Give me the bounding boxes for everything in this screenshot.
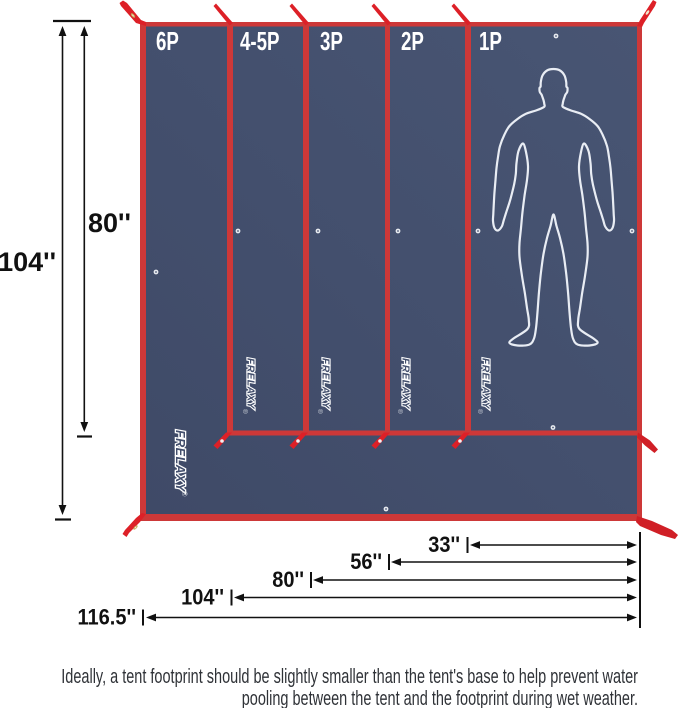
svg-text:104'': 104'' <box>0 247 56 277</box>
svg-text:2P: 2P <box>401 26 424 56</box>
svg-text:pooling between the tent and t: pooling between the tent and the footpri… <box>242 687 638 708</box>
svg-text:FRELAXY: FRELAXY <box>320 358 331 410</box>
svg-text:Ideally, a tent footprint shou: Ideally, a tent footprint should be slig… <box>61 665 638 688</box>
svg-text:104'': 104'' <box>181 586 224 610</box>
svg-text:4-5P: 4-5P <box>240 26 280 56</box>
svg-text:6P: 6P <box>156 26 179 56</box>
svg-text:FRELAXY: FRELAXY <box>400 358 411 410</box>
svg-text:®: ® <box>396 409 404 414</box>
svg-text:®: ® <box>316 409 324 414</box>
svg-text:FRELAXY: FRELAXY <box>173 430 187 493</box>
svg-text:1P: 1P <box>479 26 502 56</box>
svg-text:®: ® <box>476 409 484 414</box>
svg-text:33'': 33'' <box>428 533 460 557</box>
svg-text:3P: 3P <box>320 26 343 56</box>
svg-text:®: ® <box>180 491 189 497</box>
svg-text:56'': 56'' <box>350 550 382 574</box>
svg-text:80'': 80'' <box>272 568 304 592</box>
svg-text:116.5'': 116.5'' <box>78 606 136 630</box>
svg-text:FRELAXY: FRELAXY <box>480 358 491 410</box>
svg-text:80'': 80'' <box>88 208 131 238</box>
svg-text:FRELAXY: FRELAXY <box>245 358 256 410</box>
svg-text:®: ® <box>241 409 249 414</box>
